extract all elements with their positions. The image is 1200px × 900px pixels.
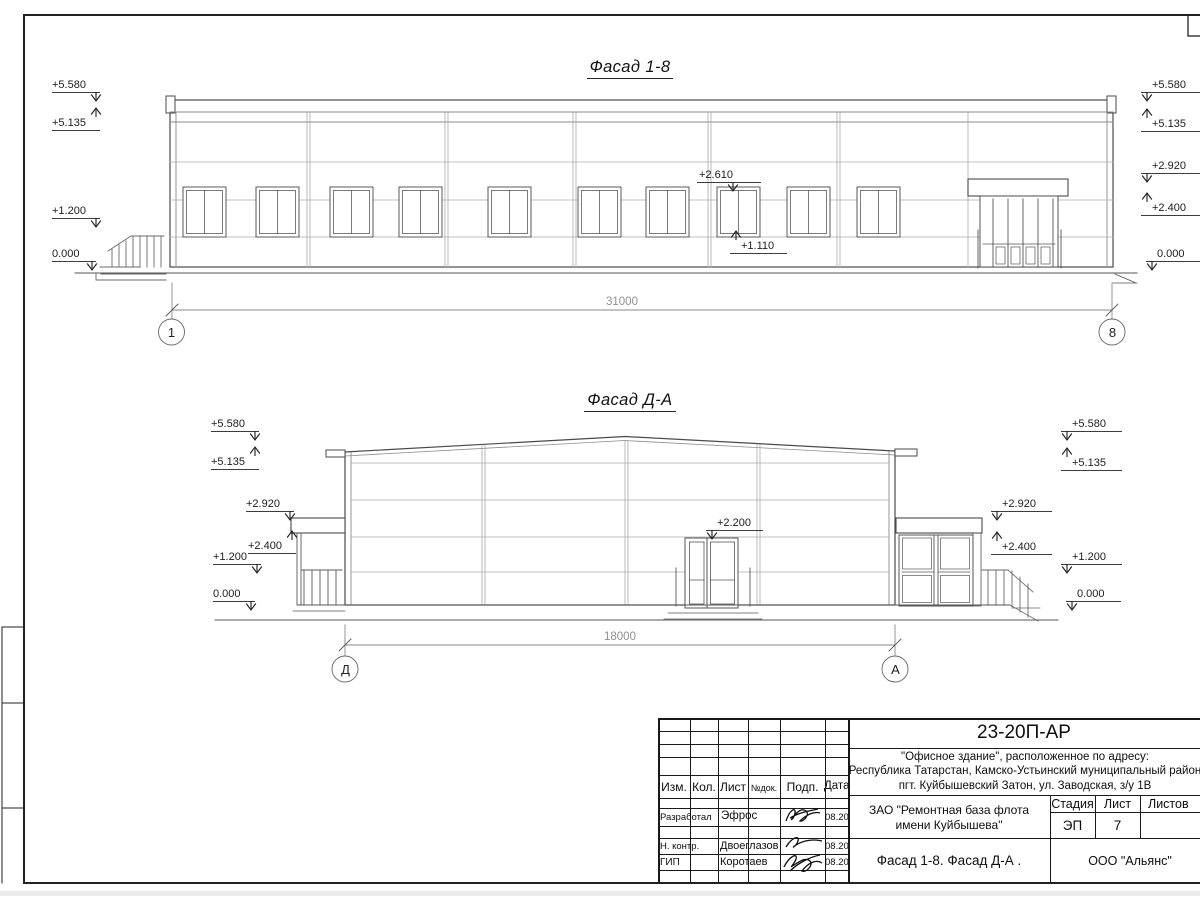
elevation-mark: +1.200 — [52, 205, 100, 219]
elevation-mark-window-top: +2.610 — [697, 169, 761, 183]
facade-1-8-entrance — [968, 179, 1068, 268]
elevation-mark: +5.135 — [211, 456, 259, 470]
col-izm: Изм. — [658, 780, 690, 794]
elevation-mark-window-sill: +1.110 — [730, 240, 787, 254]
list-label: Лист — [1095, 797, 1140, 811]
stadia-value: ЭП — [1050, 818, 1095, 833]
name-developer: Эфрос — [721, 810, 757, 822]
date-ncontrol: 08.20 — [825, 841, 848, 852]
axis-label-1: 1 — [159, 325, 184, 340]
drawing-sheet: Фасад 1-8 Фасад Д-А 31000 18000 1 8 Д А … — [0, 0, 1200, 900]
elevation-mark: +2.920 — [246, 498, 294, 512]
date-developer: 08.20 — [825, 812, 848, 823]
col-kol: Кол. — [690, 780, 718, 794]
role-gip: ГИП — [660, 857, 680, 868]
elevation-mark: +5.580 — [1061, 418, 1122, 432]
doc-number: 23-20П-АР — [848, 722, 1200, 744]
client-line-2: имени Куйбышева" — [848, 818, 1050, 832]
facade-1-8-ground — [75, 273, 1137, 283]
date-gip: 08.20 — [825, 857, 848, 868]
address-line-1: "Офисное здание", расположенное по адрес… — [845, 751, 1200, 763]
elevation-mark: +2.920 — [991, 498, 1052, 512]
elevation-mark: +2.400 — [991, 541, 1052, 555]
elevation-mark: 0.000 — [213, 588, 255, 602]
elevation-mark: 0.000 — [1146, 248, 1200, 262]
elevation-mark: +5.580 — [1141, 79, 1200, 93]
name-gip: Коротаев — [720, 856, 768, 868]
role-ncontrol: Н. контр. — [660, 841, 699, 852]
signature-ncontrol-gip — [780, 833, 826, 875]
facade-d-a-ground — [215, 605, 1058, 620]
company-name: ООО "Альянс" — [1050, 854, 1200, 868]
elevation-mark-door-top: +2.200 — [706, 517, 763, 531]
dimension-18000: 18000 — [590, 631, 650, 643]
axis-label-d: Д — [333, 662, 358, 677]
list-value: 7 — [1095, 818, 1140, 833]
axis-label-a: А — [883, 662, 908, 677]
sheet-title: Фасад 1-8. Фасад Д-А . — [848, 853, 1050, 868]
facade-d-a-right-annex — [896, 518, 1040, 621]
elevation-mark: +5.580 — [52, 79, 100, 93]
elevation-mark: +5.580 — [211, 418, 259, 432]
facade-d-a-left-annex — [291, 518, 345, 611]
elevation-mark: +5.135 — [1141, 118, 1200, 132]
elevation-mark: +5.135 — [52, 117, 100, 131]
elevation-mark: +2.920 — [1141, 160, 1200, 174]
col-list: Лист — [718, 780, 748, 794]
address-line-2: Республика Татарстан, Камско-Устьинский … — [845, 765, 1200, 777]
client-line-1: ЗАО "Ремонтная база флота — [848, 803, 1050, 817]
elevation-mark: 0.000 — [1066, 588, 1121, 602]
stadia-label: Стадия — [1050, 797, 1095, 811]
elevation-mark: +1.200 — [1061, 551, 1122, 565]
signature-developer — [782, 803, 824, 827]
facade-d-a-title: Фасад Д-А — [550, 391, 710, 410]
facade-d-a-drawing — [215, 437, 1058, 622]
col-ndok: №док. — [748, 783, 780, 793]
dimension-31000: 31000 — [592, 296, 652, 308]
facade-1-8-drawing — [75, 96, 1137, 283]
role-developer: Разработал — [660, 812, 712, 823]
elevation-mark: +1.200 — [213, 551, 261, 565]
col-podp: Подп. — [780, 780, 825, 794]
name-ncontrol: Двоеглазов — [720, 840, 778, 852]
address-line-3: пгт. Куйбышевский Затон, ул. Заводская, … — [845, 780, 1200, 792]
elevation-mark: +5.135 — [1061, 457, 1122, 471]
elevation-mark: +2.400 — [1141, 202, 1200, 216]
elevation-mark: 0.000 — [52, 248, 96, 262]
facade-1-8-title: Фасад 1-8 — [550, 58, 710, 77]
listov-label: Листов — [1148, 797, 1189, 811]
axis-label-8: 8 — [1100, 325, 1125, 340]
